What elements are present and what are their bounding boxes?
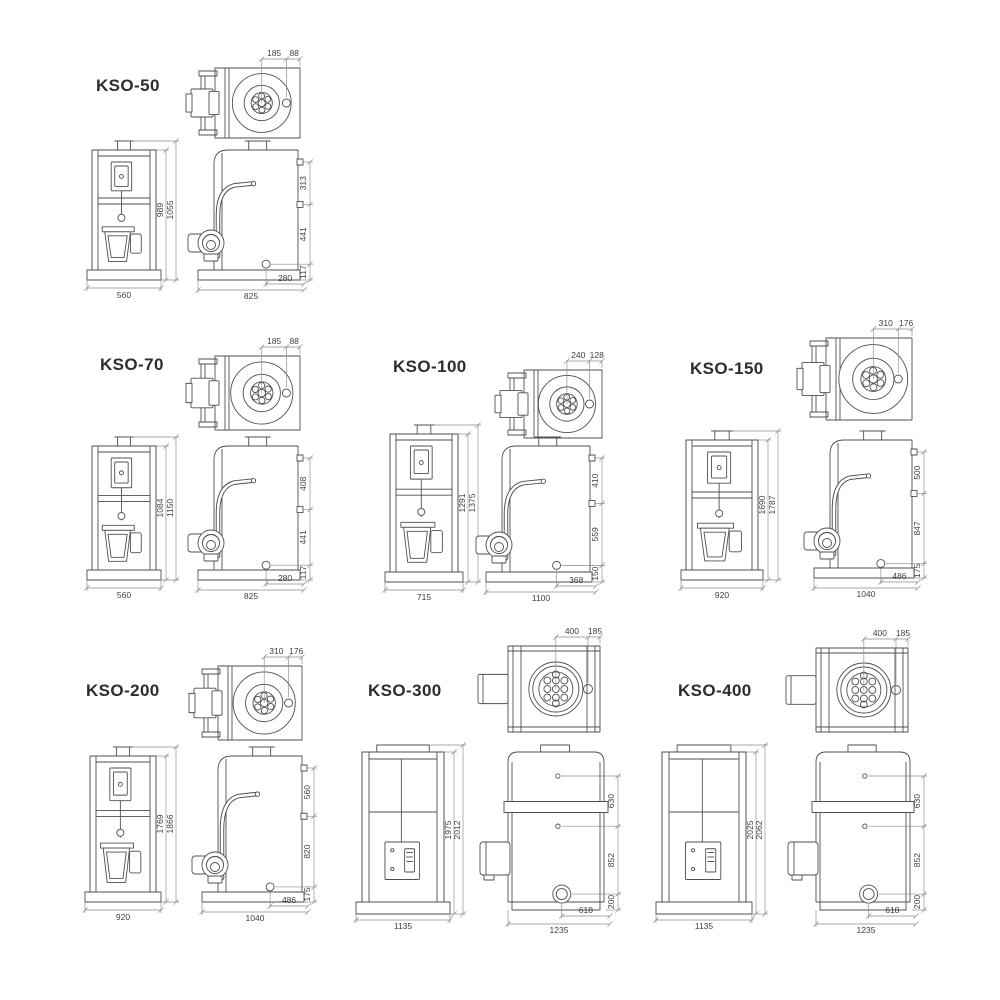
dim-label: 175 (302, 887, 312, 901)
dim-label: 185 (588, 626, 602, 636)
kso-150-side-view: 5008471754861040 (804, 431, 927, 599)
dim-label: 150 (590, 566, 600, 580)
dim-label: 920 (715, 590, 729, 600)
dim-label: 410 (590, 473, 600, 487)
dim-label: 1291 (457, 493, 467, 512)
dim-label: 441 (298, 227, 308, 241)
dim-label: 400 (873, 628, 887, 638)
kso-100-top-view: 240128 (495, 350, 605, 438)
dim-label: 1787 (767, 495, 777, 514)
dim-label: 560 (302, 785, 312, 799)
dim-label: 200 (912, 895, 922, 909)
dim-label: 1135 (394, 921, 413, 931)
dim-label: 1866 (165, 814, 175, 833)
dim-label: 280 (278, 573, 292, 583)
kso-300-drawing: 4001851975201211356308522006181235 (353, 626, 621, 935)
dim-label: 847 (912, 521, 922, 535)
dim-label: 715 (417, 592, 431, 602)
dim-label: 560 (117, 290, 131, 300)
dim-label: 1100 (532, 593, 551, 603)
model-label-kso-70: KSO-70 (100, 355, 164, 375)
dim-label: 989 (155, 203, 165, 217)
dim-label: 852 (912, 853, 922, 867)
model-label-kso-200: KSO-200 (86, 681, 160, 701)
dim-label: 630 (606, 794, 616, 808)
dim-label: 240 (571, 350, 585, 360)
model-label-kso-50: KSO-50 (96, 76, 160, 96)
kso-150-top-view: 310176 (797, 318, 915, 420)
dim-label: 618 (885, 905, 899, 915)
kso-400-side-view: 6308522006181235 (788, 745, 927, 935)
dim-label: 117 (298, 566, 308, 580)
dim-label: 176 (899, 318, 913, 328)
kso-50-top-view: 18588 (186, 48, 303, 138)
kso-400-top-view: 400185 (786, 628, 911, 732)
dim-label: 1084 (155, 498, 165, 517)
dim-label: 200 (606, 895, 616, 909)
dim-label: 88 (289, 336, 299, 346)
boiler-dimension-diagram: 1858898910555603134411172808251858810841… (0, 0, 1000, 1000)
dim-label: 441 (298, 530, 308, 544)
dim-label: 1769 (155, 814, 165, 833)
dim-label: 1040 (857, 589, 876, 599)
dim-label: 852 (606, 853, 616, 867)
kso-70-side-view: 408441117280825 (188, 437, 313, 601)
dim-label: 128 (590, 350, 604, 360)
dim-label: 500 (912, 465, 922, 479)
dim-label: 310 (879, 318, 893, 328)
dim-label: 280 (278, 273, 292, 283)
dim-label: 1690 (757, 495, 767, 514)
dim-label: 185 (267, 48, 281, 58)
kso-200-side-view: 5608201754861040 (192, 747, 317, 923)
dim-label: 2062 (754, 820, 764, 839)
dim-label: 618 (579, 905, 593, 915)
kso-70-top-view: 18588 (186, 336, 303, 430)
dim-label: 2012 (452, 820, 462, 839)
dim-label: 559 (590, 527, 600, 541)
model-label-kso-300: KSO-300 (368, 681, 442, 701)
dim-label: 630 (912, 794, 922, 808)
dim-label: 1235 (857, 925, 876, 935)
kso-100-side-view: 4105591503681100 (476, 437, 605, 603)
dim-label: 560 (117, 590, 131, 600)
dim-label: 920 (116, 912, 130, 922)
kso-70-drawing: 1858810841150560408441117280825 (84, 336, 313, 601)
kso-50-front-view: 9891055560 (84, 138, 179, 300)
dim-label: 1055 (165, 200, 175, 219)
kso-400-front-view: 202520621135 (653, 742, 768, 931)
kso-150-front-view: 16901787920 (678, 428, 781, 600)
kso-50-side-view: 313441117280825 (188, 141, 313, 301)
kso-200-front-view: 17691866920 (82, 744, 179, 922)
dim-label: 368 (569, 575, 583, 585)
dim-label: 176 (289, 646, 303, 656)
dim-label: 313 (298, 176, 308, 190)
dim-label: 408 (298, 476, 308, 490)
kso-100-front-view: 12911375715 (382, 422, 481, 602)
dim-label: 185 (896, 628, 910, 638)
dim-label: 400 (565, 626, 579, 636)
dim-label: 825 (244, 291, 258, 301)
model-label-kso-100: KSO-100 (393, 357, 467, 377)
dim-label: 88 (289, 48, 299, 58)
dim-label: 310 (269, 646, 283, 656)
model-label-kso-400: KSO-400 (678, 681, 752, 701)
kso-100-drawing: 240128129113757154105591503681100 (382, 350, 605, 603)
dim-label: 486 (282, 895, 296, 905)
dim-label: 117 (298, 265, 308, 279)
model-label-kso-150: KSO-150 (690, 359, 764, 379)
dim-label: 825 (244, 591, 258, 601)
dim-label: 175 (912, 563, 922, 577)
kso-200-top-view: 310176 (189, 646, 305, 740)
dim-label: 1235 (550, 925, 569, 935)
dim-label: 1375 (467, 493, 477, 512)
kso-400-drawing: 4001852025206211356308522006181235 (653, 628, 927, 935)
dim-label: 1040 (246, 913, 265, 923)
kso-300-front-view: 197520121135 (353, 742, 466, 931)
kso-300-top-view: 400185 (478, 626, 603, 732)
kso-300-side-view: 6308522006181235 (480, 745, 621, 935)
dim-label: 1135 (695, 921, 714, 931)
dim-label: 486 (892, 571, 906, 581)
dim-label: 185 (267, 336, 281, 346)
dim-label: 820 (302, 844, 312, 858)
kso-70-front-view: 10841150560 (84, 434, 179, 600)
dim-label: 1150 (165, 499, 175, 518)
technical-drawing-sheet: 1858898910555603134411172808251858810841… (0, 0, 1000, 1000)
